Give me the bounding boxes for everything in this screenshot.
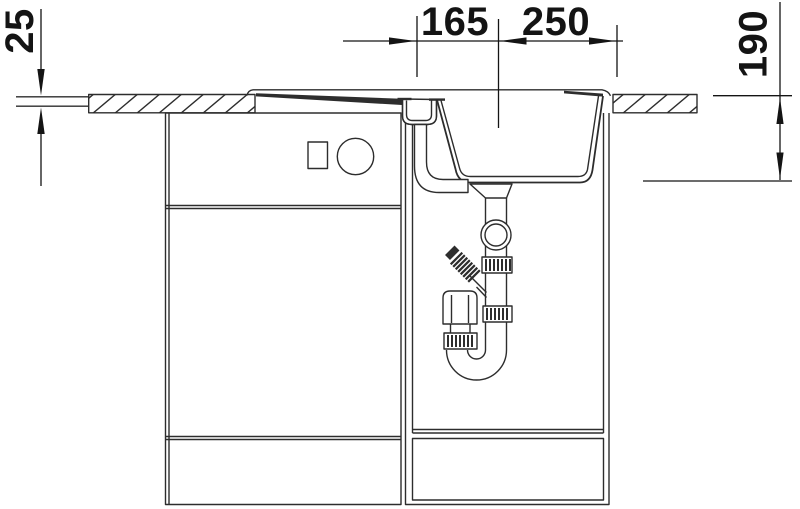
branch-end-cap — [448, 248, 458, 258]
arrow-right — [389, 37, 416, 44]
dim-label-right-span: 250 — [522, 0, 590, 44]
hatch-pattern-right — [600, 93, 713, 114]
drain-funnel — [470, 184, 512, 198]
channel-drain-pipe — [415, 125, 469, 193]
dim-label-countertop-thickness: 25 — [0, 8, 42, 54]
wall-outlet-connector — [443, 291, 477, 349]
control-knob — [337, 138, 373, 174]
arrow-down — [776, 153, 783, 180]
dimension-top-spans: 165 250 — [343, 0, 623, 128]
installation-drawing: 25 165 250 190 — [0, 0, 800, 509]
coupling-nut-upper — [482, 257, 512, 273]
countertop-section-right — [600, 93, 713, 114]
countertop-edge-left — [16, 97, 89, 106]
sink-rim-right-ledge — [564, 91, 603, 97]
sink-bowl-inner-wall — [441, 96, 599, 177]
arrow-up — [776, 98, 783, 125]
cabinet-right-drawer-front — [413, 439, 604, 501]
coupling-nut-lower — [444, 333, 477, 349]
u-bend-outer — [447, 350, 507, 380]
sink-drainboard — [256, 93, 402, 105]
drain-trap-assembly — [415, 125, 513, 381]
dimension-bowl-depth: 190 — [643, 2, 792, 181]
sink-bowl-outer-wall — [437, 96, 603, 183]
countertop — [16, 93, 713, 114]
sink-rim-top-edge — [247, 90, 611, 96]
dishwasher-connection-branch — [448, 248, 487, 298]
control-button — [308, 142, 328, 169]
arrow-down — [37, 69, 44, 96]
countertop-section-left — [70, 93, 271, 114]
arrow-up — [37, 108, 44, 135]
dim-label-bowl-depth: 190 — [732, 10, 776, 78]
cabinet-left-unit — [166, 113, 402, 505]
u-bend-inner — [468, 350, 486, 359]
coupling-nut-middle — [483, 306, 512, 322]
sink-unit — [247, 90, 611, 183]
dim-label-left-span: 165 — [421, 0, 489, 44]
arrow-right — [589, 37, 616, 44]
hatch-pattern-left — [70, 93, 271, 114]
drawing-canvas: 25 165 250 190 — [0, 0, 800, 509]
outlet-nut — [443, 291, 477, 324]
